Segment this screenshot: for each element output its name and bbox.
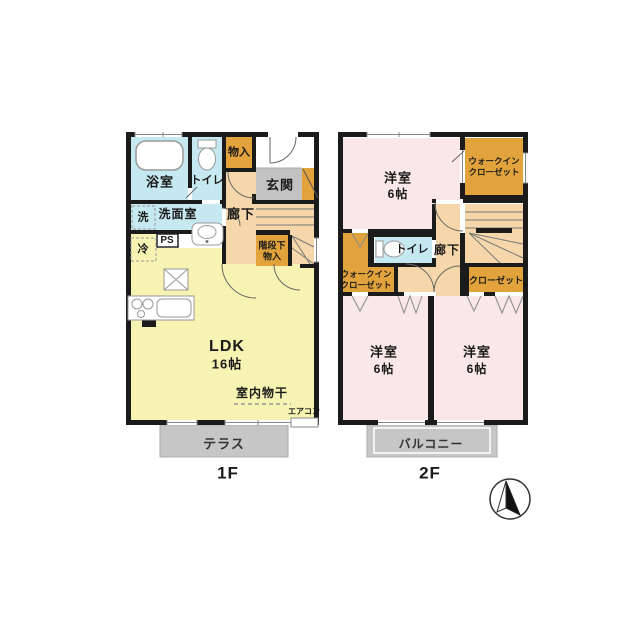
label-ps: PS (160, 236, 173, 246)
room-label-bath: 浴室 (146, 176, 174, 189)
room-label-washroom: 洗面室 (158, 208, 197, 220)
label-under-stairs-2: 物入 (263, 253, 281, 262)
bathtub (136, 141, 183, 170)
room-label-ldk: LDK (209, 339, 245, 355)
room-label-hallway1: 廊下 (227, 208, 255, 221)
toilet2-tank (376, 241, 383, 257)
kitchen-sink (157, 299, 191, 317)
room-label-entrance: 玄関 (266, 179, 294, 192)
room-label-wic-right-2: クローゼット (468, 168, 519, 177)
wash-basin-drain (206, 240, 209, 243)
label-washer: 洗 (138, 213, 149, 224)
room-label-ldk-size: 16帖 (212, 358, 242, 371)
north-compass (490, 479, 530, 519)
room-label-wic-left-2: クローゼット (340, 281, 391, 290)
label-aircon: エアコン (288, 408, 320, 416)
room-label-bedroom1-size: 6帖 (388, 188, 409, 200)
room-label-wic-left-1: ウォークイン (340, 270, 391, 279)
room-label-bedroom3: 洋室 (463, 346, 491, 359)
label-indoor-drying: 室内物干 (236, 387, 288, 399)
room-label-hallway2: 廊下 (434, 244, 460, 256)
room-label-bedroom3-size: 6帖 (467, 363, 488, 375)
floor1-label: 1F (217, 465, 239, 482)
toilet1-bowl (199, 148, 216, 170)
room-label-bedroom1: 洋室 (384, 172, 412, 185)
toilet1-tank (198, 140, 216, 148)
entrance-door-arc (270, 137, 296, 163)
room-label-wic-right-1: ウォークイン (468, 157, 519, 166)
room-label-bedroom2: 洋室 (370, 346, 398, 359)
room-label-storage1: 物入 (228, 148, 250, 159)
aircon-box (291, 418, 318, 427)
floor-plan-canvas (0, 0, 640, 640)
room-label-closet: クローゼット (469, 277, 523, 286)
floor-plan-image: 浴室 トイレ 物入 玄関 洗面室 洗 PS 冷 廊下 階段下 物入 LDK 16… (0, 0, 640, 640)
label-balcony: バルコニー (399, 438, 464, 450)
room-label-toilet2: トイレ (396, 245, 429, 256)
label-fridge: 冷 (138, 245, 149, 256)
room-label-toilet1: トイレ (191, 176, 224, 187)
label-under-stairs-1: 階段下 (258, 242, 285, 251)
room-label-bedroom2-size: 6帖 (374, 363, 395, 375)
floor2-label: 2F (419, 465, 441, 482)
wash-basin-bowl (198, 226, 216, 239)
label-terrace: テラス (203, 438, 245, 451)
